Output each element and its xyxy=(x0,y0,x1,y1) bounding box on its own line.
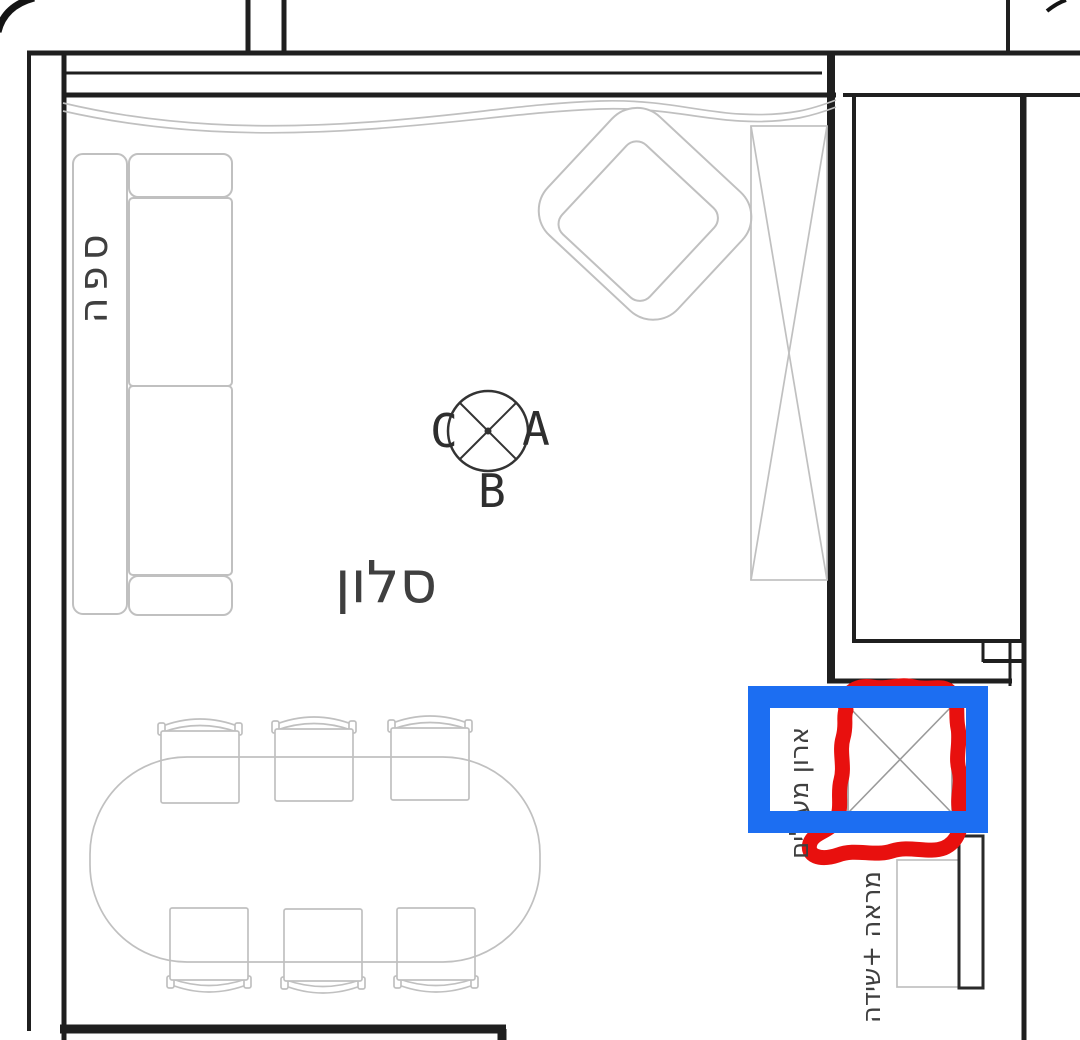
window-curtain-line xyxy=(63,100,836,133)
mirror-dresser-label: מראה +שידה xyxy=(859,871,885,1023)
dresser-outline xyxy=(959,836,983,988)
light-letter-b: B xyxy=(478,468,506,514)
ceiling-light-symbol xyxy=(448,391,528,471)
light-letter-c: C xyxy=(430,408,458,454)
corner-artifact-top-left xyxy=(0,0,34,32)
annotation-blue-rectangle xyxy=(748,686,988,833)
corner-artifact-top-right xyxy=(1047,0,1066,11)
dining-chair xyxy=(167,908,251,992)
dining-chair xyxy=(394,908,478,992)
dining-chair xyxy=(158,719,242,803)
light-letter-a: A xyxy=(522,406,550,452)
floor-plan-linework xyxy=(0,0,1080,1040)
mirror-outline xyxy=(897,860,960,987)
room-label-salon: סלון xyxy=(335,553,437,611)
upper-wall-stub xyxy=(248,0,284,53)
tall-cabinet-x xyxy=(751,126,827,580)
dining-chair xyxy=(281,909,365,993)
cabinet-notch-lines xyxy=(827,641,1022,686)
dining-chair xyxy=(272,717,356,801)
adjacent-room-cabinet xyxy=(854,95,1022,641)
armchair xyxy=(525,94,766,334)
left-wall xyxy=(29,51,64,1040)
bottom-wall xyxy=(60,1029,506,1040)
top-wall xyxy=(27,53,1080,95)
sofa xyxy=(73,154,232,615)
floor-plan-screenshot: סלון ספה ארון מעילים מראה +שידה C A B xyxy=(0,0,1080,1040)
sofa-label: ספה xyxy=(74,228,114,323)
